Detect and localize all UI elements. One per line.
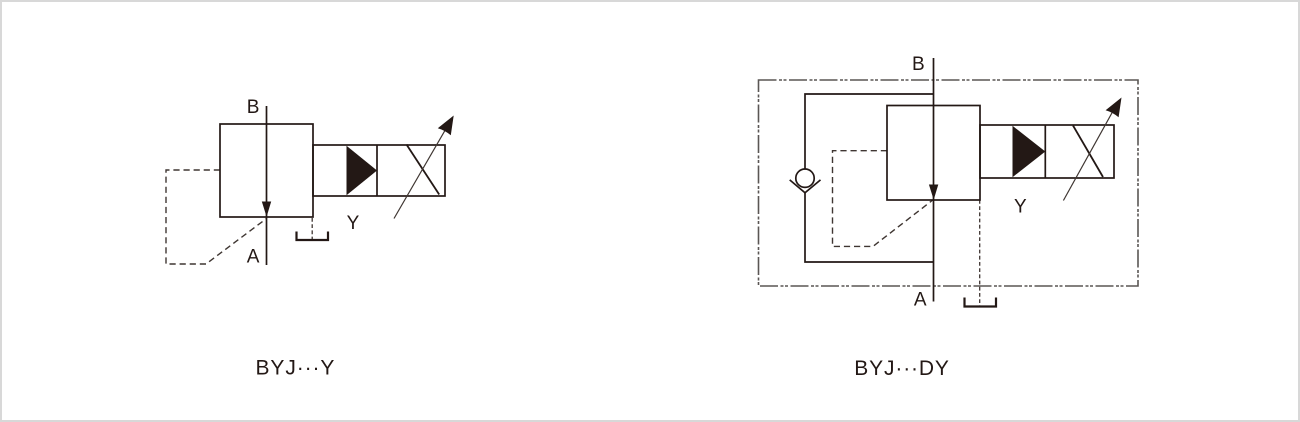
svg-text:B: B <box>247 97 260 118</box>
svg-text:A: A <box>914 290 927 311</box>
svg-text:B: B <box>912 54 925 75</box>
svg-text:Y: Y <box>1014 197 1027 218</box>
svg-text:BYJ···DY: BYJ···DY <box>854 357 949 380</box>
svg-text:A: A <box>247 247 260 268</box>
svg-text:Y: Y <box>347 213 360 234</box>
svg-text:BYJ···Y: BYJ···Y <box>256 356 336 379</box>
